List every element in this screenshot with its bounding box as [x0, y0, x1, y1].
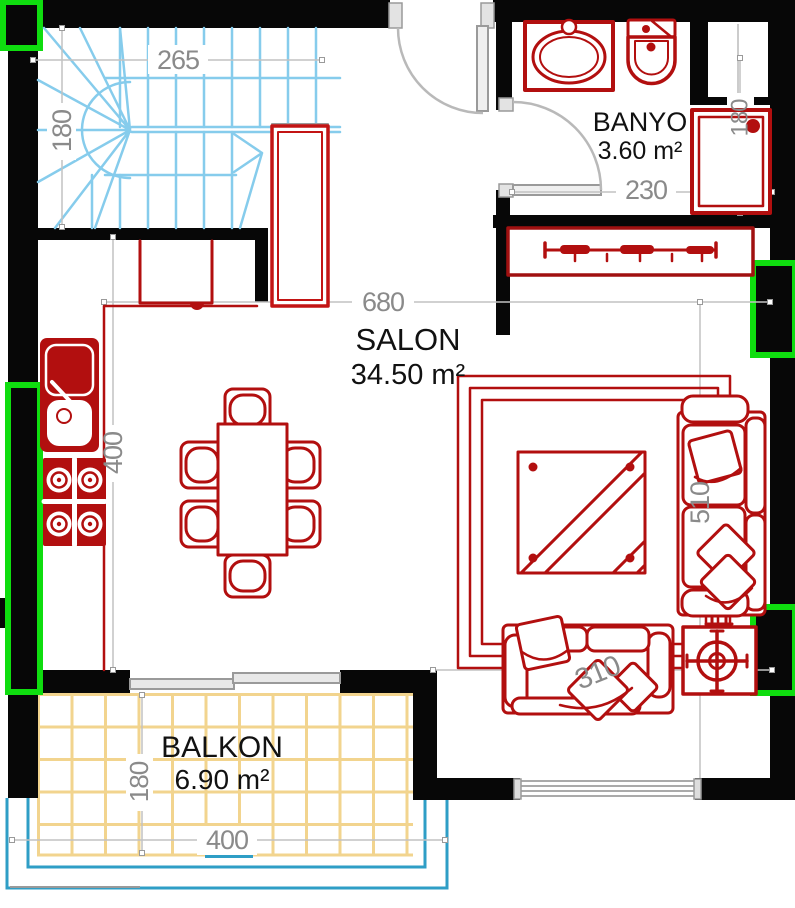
- dim-balkon-depth: 180: [124, 761, 154, 802]
- bathroom-sink: [525, 20, 613, 90]
- balcony-sliding-door: [130, 673, 340, 689]
- wall-top-left: [5, 0, 390, 28]
- window-right-lower: [753, 607, 795, 693]
- balkon-label: BALKON: [161, 731, 283, 764]
- dim-stair-width: 265: [157, 45, 199, 75]
- wardrobe: [508, 228, 753, 275]
- wall-bath-bottom: [493, 215, 770, 228]
- dim-banyo-depth: 180: [727, 99, 754, 137]
- wall-jog: [255, 228, 268, 302]
- wall-bath-left-a: [496, 22, 512, 110]
- dining-chair: [225, 555, 270, 597]
- bottom-window: [514, 779, 701, 799]
- wall-balcony-left: [38, 670, 130, 693]
- stair-door-leaf: [272, 124, 328, 306]
- bathroom-door-leaf: [513, 185, 601, 195]
- kitchen-sink: [40, 338, 99, 452]
- dim-stair-depth: 180: [47, 110, 77, 152]
- salon-label: SALON: [355, 322, 460, 357]
- floor-plan: 265 180 680 400 230 180 510 310 180 400 …: [0, 0, 795, 908]
- entry-door-arc: [398, 28, 483, 113]
- window-top-left: [3, 2, 40, 48]
- pillow: [688, 430, 742, 484]
- dining-table: [218, 424, 287, 555]
- entry-door-leaf: [477, 26, 488, 111]
- banyo-label: BANYO: [593, 107, 688, 137]
- window-right-upper: [753, 263, 795, 355]
- balkon-area: 6.90 m²: [175, 764, 270, 795]
- dining-set: [181, 389, 320, 597]
- dim-banyo-width: 230: [625, 175, 667, 205]
- dim-salon-depth: 510: [685, 482, 715, 524]
- toilet: [628, 20, 675, 84]
- kitchen-stove: [43, 458, 106, 546]
- window-left: [8, 385, 40, 692]
- bathroom-door: [499, 98, 601, 197]
- bathroom-door-arc: [513, 102, 601, 190]
- wall-bottom-b: [695, 778, 795, 800]
- dim-kitchen-wall: 400: [98, 432, 128, 474]
- floor-plan-drawing: 265 180 680 400 230 180 510 310 180 400 …: [0, 0, 795, 908]
- banyo-area: 3.60 m²: [598, 137, 683, 165]
- dim-salon-width: 680: [362, 287, 404, 317]
- wall-bottom-a: [413, 778, 520, 800]
- kitchen-cabinet: [140, 241, 212, 310]
- entry-door: [389, 3, 494, 113]
- dim-balkon-width: 400: [206, 825, 248, 855]
- pillow: [516, 616, 571, 671]
- wall-under-stair: [38, 228, 260, 240]
- side-table: [683, 627, 756, 694]
- salon-area: 34.50 m²: [351, 359, 466, 391]
